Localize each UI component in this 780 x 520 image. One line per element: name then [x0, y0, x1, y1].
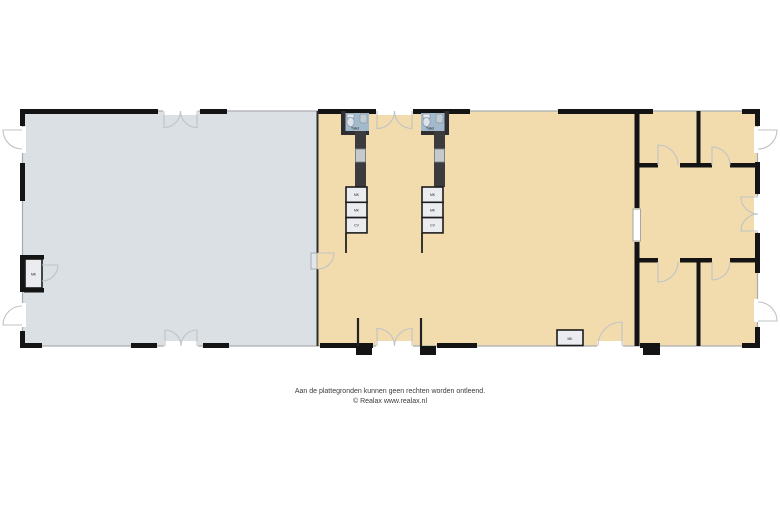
duct-box	[435, 149, 445, 162]
sink-icon	[360, 114, 367, 123]
disclaimer-text: Aan de plattegronden kunnen geen rechten…	[0, 387, 780, 397]
toilet-label: Toilet	[351, 127, 359, 131]
toilet-label: Toilet	[426, 127, 434, 131]
pillar-stub	[643, 346, 660, 355]
pillar-stub	[356, 346, 372, 355]
closet-label: MK	[31, 273, 37, 277]
cabinet-label: CV	[354, 224, 359, 228]
toilet-bowl-icon	[423, 117, 430, 126]
cabinet-label: CV	[430, 224, 435, 228]
toilet-bowl-icon	[347, 117, 354, 126]
warehouse-room-floor	[22, 111, 317, 346]
pillar-stub	[420, 346, 436, 355]
hall-cabinet: MK	[557, 330, 583, 346]
cabinet-label: MK	[354, 208, 360, 212]
cabinet-label: MK	[430, 208, 436, 212]
utility-cabinets-right: MK MK CV	[422, 187, 443, 233]
utility-cabinets-left: MK MK CV	[346, 187, 367, 233]
door-leaf	[311, 253, 317, 269]
floor-plan-canvas: Toilet MK MK CV Toilet MK MK CV	[0, 0, 780, 375]
sink-icon	[436, 114, 443, 123]
hall-cabinet-label: MK	[567, 337, 573, 341]
cabinet-label: MK	[430, 193, 436, 197]
footer-disclaimer: Aan de plattegronden kunnen geen rechten…	[0, 387, 780, 407]
duct-box	[356, 149, 366, 162]
room-fills	[22, 111, 758, 346]
copyright-text: © Realax www.realax.nl	[0, 397, 780, 407]
cabinet-label: MK	[354, 193, 360, 197]
open-door-leaf	[633, 209, 641, 241]
